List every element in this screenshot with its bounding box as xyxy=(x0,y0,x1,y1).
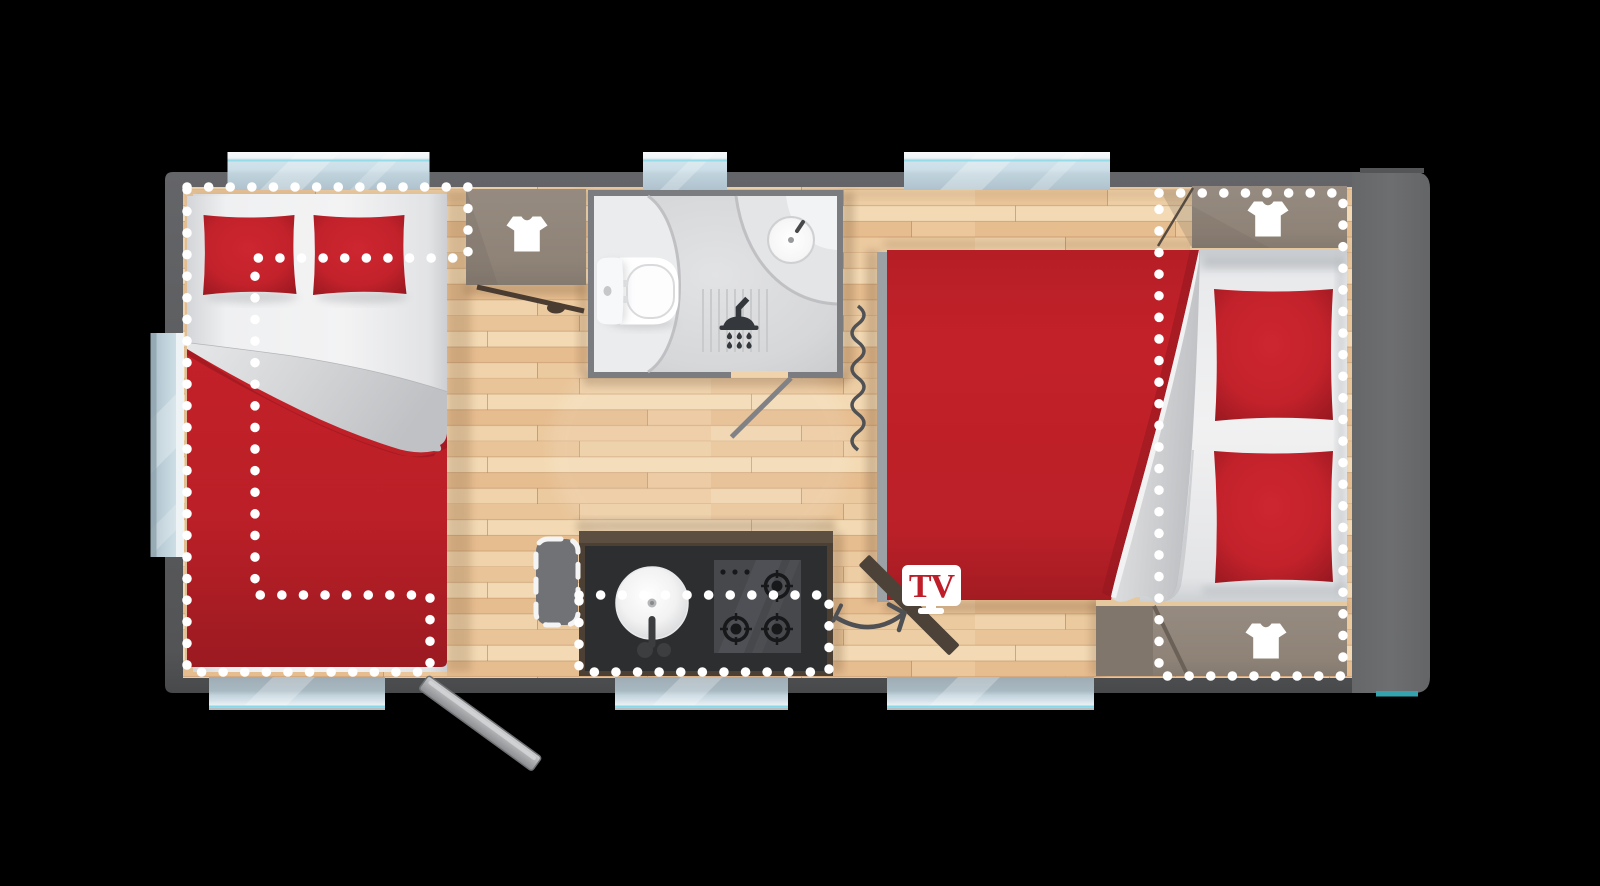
svg-text:TV: TV xyxy=(909,568,956,605)
